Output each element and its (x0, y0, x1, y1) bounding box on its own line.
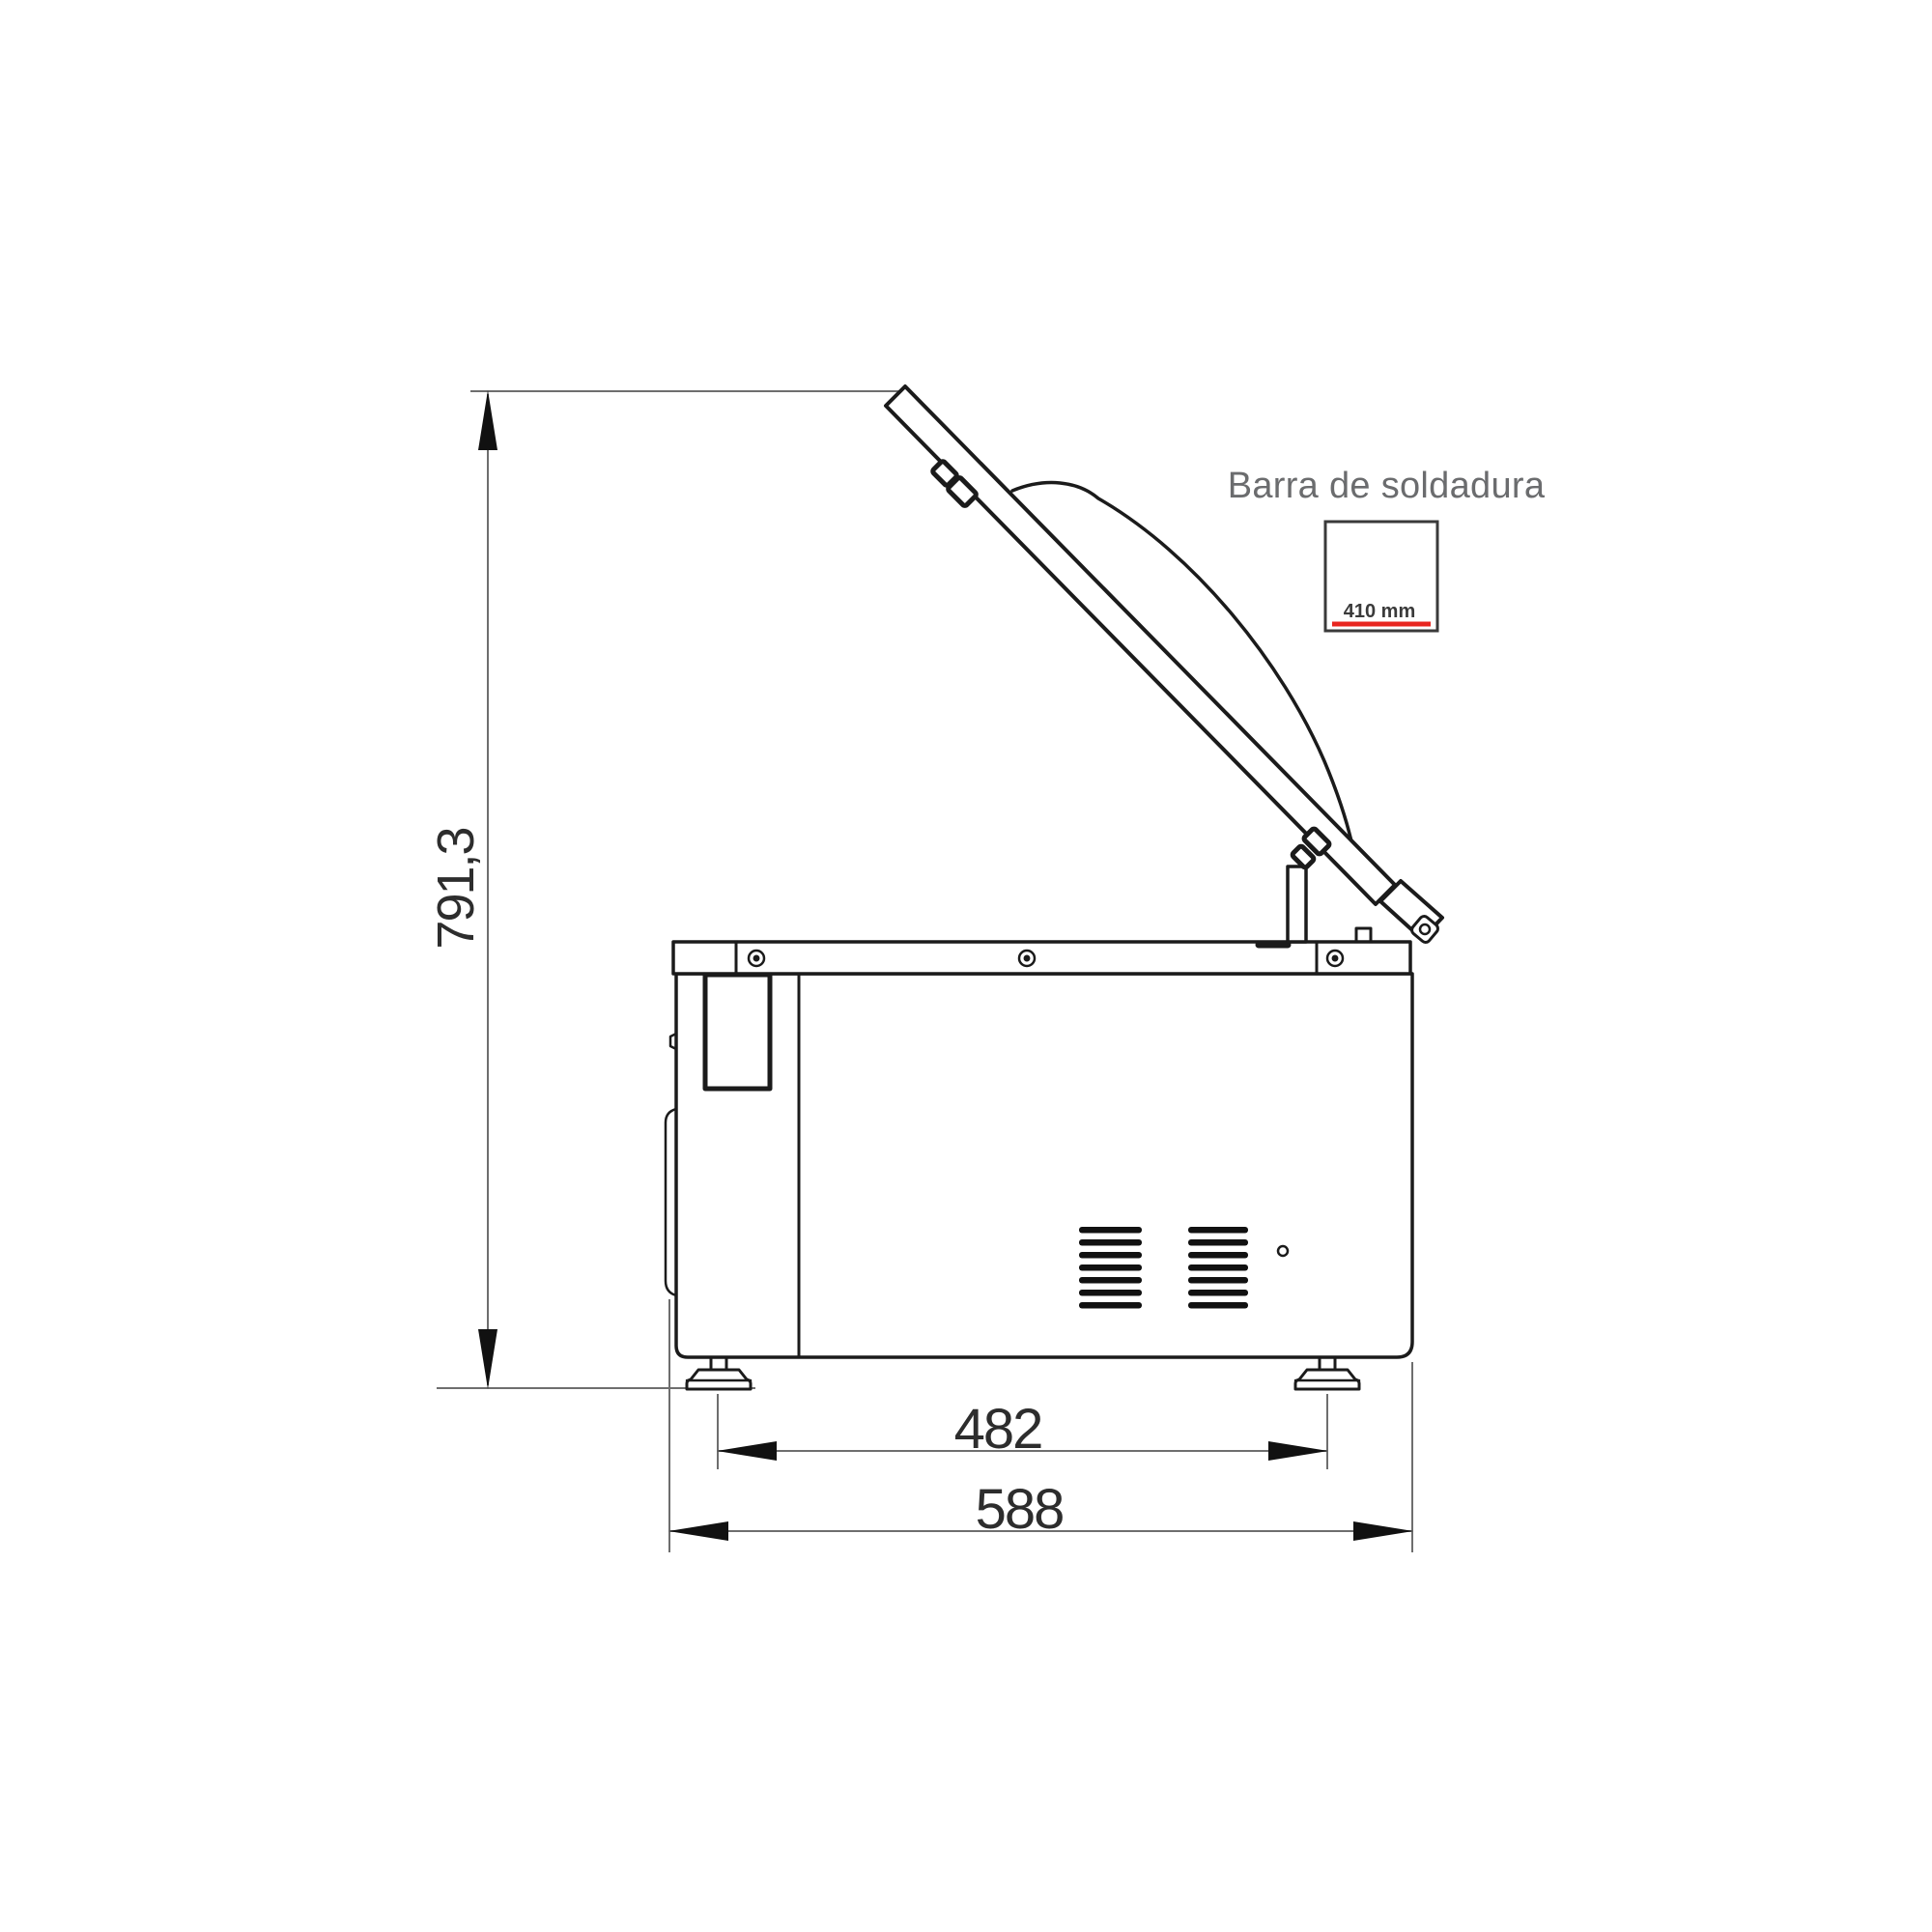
lid-support-post (1288, 867, 1306, 942)
screw-icon (1019, 951, 1035, 966)
arrow-left-icon (668, 1521, 728, 1541)
arrow-up-icon (478, 390, 497, 450)
adjustable-foot-right (1295, 1358, 1359, 1389)
lid-bar (886, 386, 1395, 904)
side-panel (705, 975, 770, 1089)
height-dimension-value: 791,3 (427, 811, 485, 966)
line-drawing (0, 0, 1932, 1932)
arrow-right-icon (1268, 1441, 1328, 1461)
arrow-right-icon (1353, 1521, 1413, 1541)
overall-depth-dimension-value: 588 (947, 1477, 1092, 1542)
foot-span-dimension-value: 482 (925, 1397, 1070, 1462)
welding-bar-size-label: 410 mm (1325, 601, 1434, 623)
arrow-down-icon (478, 1329, 497, 1389)
screw-icon (749, 951, 764, 966)
welding-bar-title: Barra de soldadura (1188, 466, 1584, 507)
machine-body (666, 928, 1412, 1389)
screw-icon (1327, 951, 1343, 966)
adjustable-foot-left (687, 1358, 751, 1389)
strip-tab (1356, 928, 1371, 942)
table-top-strip (673, 942, 1410, 974)
technical-drawing-canvas: Barra de soldadura 410 mm 791,3 482 588 (0, 0, 1932, 1932)
cabinet-outline (676, 974, 1412, 1357)
arrow-left-icon (717, 1441, 777, 1461)
